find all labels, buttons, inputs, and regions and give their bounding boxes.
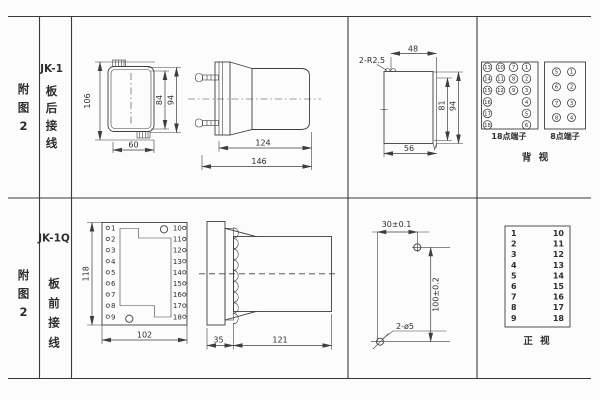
table-number: 13: [553, 261, 564, 270]
drawing-sheet: 附 图 2 JK-1 板 后 接 线 106 60 84 94: [0, 0, 600, 400]
terminal-number: 15: [484, 88, 491, 94]
terminal-number: 1: [525, 65, 528, 71]
row1-wiring-char-3: 接: [46, 119, 58, 133]
dim-124-label: 124: [255, 139, 270, 148]
row2-side-view: 35 121: [199, 222, 336, 350]
row1-front-view: 106 60 84 94: [83, 60, 181, 153]
terminal-circle: 8: [509, 75, 518, 84]
table-number: 16: [553, 293, 565, 302]
terminal-dot: [106, 293, 109, 296]
terminal-dot: [183, 282, 186, 285]
screw-thread-top: [207, 75, 215, 80]
row1-side-view: 124 146: [188, 62, 321, 170]
terminal-number: 18: [484, 123, 491, 129]
terminal-dot: [106, 260, 109, 263]
terminal-circle: 18: [483, 121, 492, 130]
row2-drill-plan: 30±0.1 100±0.2 2-ø5: [371, 220, 450, 349]
row2-figure-char-3: 2: [19, 305, 27, 319]
row1-figure-char-2: 图: [18, 101, 30, 115]
extension-lines-48: [391, 57, 437, 148]
terminal-box-18pt: [482, 62, 539, 129]
row1-rear-view-terminals: 13 14 15 16 17 18 10 11 12 7 8 9 1 2 3 4…: [482, 62, 586, 164]
terminal-circle: 14: [483, 75, 492, 84]
row2-front-table: 110 211 312 413 514 615 716 817 918 正 视: [505, 226, 570, 347]
terminal-block-top-hatch: [116, 60, 125, 67]
terminal-number: 5: [525, 111, 528, 117]
dim-121-label: 121: [272, 336, 287, 345]
dim-94-label: 94: [167, 95, 176, 105]
holes-leader-line: [383, 331, 447, 339]
table-number: 18: [553, 314, 565, 323]
table-number: 8: [511, 303, 517, 312]
terminal-label: 17: [173, 302, 182, 310]
row1-wiring-char-1: 板: [46, 84, 58, 98]
dim-84-label: 84: [155, 95, 164, 105]
terminal-circle: 7: [509, 63, 518, 72]
terminal-number: 16: [484, 100, 491, 106]
terminal-circle: 6: [522, 121, 531, 130]
dim-56-label: 56: [404, 144, 414, 153]
terminal-block-bottom-hatch: [140, 132, 149, 139]
terminal-dot: [183, 260, 186, 263]
mounting-plate-inner-lines: [219, 62, 223, 135]
terminal-dot: [106, 282, 109, 285]
terminal-number: 17: [484, 111, 491, 117]
terminal-number: 2: [525, 77, 528, 83]
terminal-circle: 6: [553, 83, 561, 91]
flange-slants: [230, 62, 252, 135]
bottom-tab: [433, 144, 437, 150]
terminal-label: 15: [173, 280, 182, 288]
terminal-label: 6: [111, 280, 116, 288]
row2-wiring-char-2: 前: [48, 296, 60, 310]
terminal-number: 1: [570, 70, 573, 76]
terminal-number: 3: [525, 88, 528, 94]
terminal-dot: [106, 304, 109, 307]
table-number: 5: [511, 271, 517, 280]
terminal-label: 18: [173, 313, 182, 321]
screw-shaft-top: [203, 75, 219, 80]
terminal-number: 10: [497, 65, 504, 71]
terminal-dot: [106, 271, 109, 274]
terminal-dot: [183, 226, 186, 229]
row2-wiring-char-1: 板: [48, 277, 60, 291]
terminal-circle: 15: [483, 86, 492, 95]
cutout-outline: [384, 72, 433, 144]
terminal-label: 11: [173, 236, 182, 244]
terminal-circle: 1: [522, 63, 531, 72]
terminal-dot: [106, 248, 109, 251]
dim-118-label: 118: [82, 266, 91, 281]
terminal-label: 10: [173, 225, 182, 233]
terminal-circle: 16: [483, 98, 492, 107]
dim-60-label: 60: [128, 141, 138, 150]
terminal-number: 7: [555, 101, 558, 107]
terminal-label: 9: [111, 313, 115, 321]
r2.5-leader-line: [377, 65, 387, 71]
terminal-label: 7: [111, 291, 115, 299]
technical-drawing-svg: 附 图 2 JK-1 板 后 接 线 106 60 84 94: [0, 0, 600, 400]
table-number: 17: [553, 303, 564, 312]
terminal-dot: [183, 271, 186, 274]
terminal-number: 8: [555, 115, 559, 121]
screw-thread-bottom: [207, 121, 215, 126]
dim-146-label: 146: [251, 157, 266, 166]
terminal-label: 1: [111, 225, 115, 233]
terminal-dot: [183, 315, 186, 318]
terminal-label: 13: [173, 258, 182, 266]
table-number: 3: [511, 250, 517, 259]
row2-figure-char-2: 图: [18, 287, 30, 301]
terminal-number: 11: [497, 77, 504, 83]
dim-30-label: 30±0.1: [382, 220, 412, 229]
terminal-label: 4: [111, 258, 116, 266]
terminal-dot: [183, 293, 186, 296]
row1-wiring-char-2: 后: [46, 101, 58, 115]
screw-head-bottom: [196, 119, 203, 127]
terminal-dot: [183, 304, 186, 307]
terminal-circle: 8: [553, 114, 561, 122]
terminal-8pt-caption: 8点端子: [550, 131, 580, 141]
front-view-caption: 正 视: [523, 335, 551, 347]
terminal-number: 7: [512, 65, 515, 71]
terminal-number: 5: [555, 70, 558, 76]
table-number: 11: [553, 240, 565, 249]
row1-labels: 附 图 2 JK-1 板 后 接 线: [18, 63, 63, 150]
radius-label: 2-R2.5: [359, 56, 385, 65]
terminal-dot: [106, 237, 109, 240]
terminal-label: 16: [173, 291, 182, 299]
terminal-circle: 2: [568, 83, 576, 91]
table-number: 9: [511, 314, 517, 323]
table-number: 7: [511, 293, 517, 302]
terminal-number: 3: [570, 101, 573, 107]
terminal-number: 9: [512, 88, 515, 94]
dim-48-label: 48: [408, 45, 418, 54]
dim-94-label: 94: [449, 101, 458, 111]
terminal-circle: 17: [483, 109, 492, 118]
terminal-circle: 2: [522, 75, 531, 84]
mounting-hole-bottom: [126, 315, 133, 322]
dim-81-label: 81: [438, 100, 447, 110]
terminal-number: 4: [570, 115, 574, 121]
terminal-18pt-caption: 18点端子: [491, 131, 526, 141]
table-number: 4: [511, 261, 517, 270]
terminal-number: 12: [497, 88, 504, 94]
row2-figure-char-1: 附: [18, 268, 30, 282]
terminal-number: 2: [570, 85, 573, 91]
rear-view-caption: 背 视: [522, 152, 550, 164]
terminal-circle: 4: [568, 114, 576, 122]
row1-model-label: JK-1: [39, 63, 63, 75]
terminal-label: 8: [111, 302, 115, 310]
terminal-number: 6: [555, 85, 559, 91]
terminal-circle: 10: [496, 63, 505, 72]
terminal-label: 5: [111, 269, 115, 277]
row2-wiring-char-3: 接: [48, 316, 60, 330]
dim-102-label: 102: [137, 331, 152, 340]
row1-figure-char-3: 2: [19, 119, 27, 133]
dim-106-label: 106: [83, 93, 92, 108]
table-number: 1: [511, 229, 517, 238]
terminal-number: 13: [484, 65, 491, 71]
screw-head-top: [196, 74, 203, 82]
terminal-circle: 4: [522, 98, 531, 107]
terminal-block-top: [113, 60, 126, 67]
table-number: 10: [553, 229, 565, 238]
table-number: 2: [511, 240, 517, 249]
inner-stepped-outline: [120, 229, 171, 318]
table-number: 6: [511, 282, 517, 291]
table-number: 14: [553, 271, 565, 280]
row1-figure-char-1: 附: [18, 82, 30, 96]
extension-lines: [207, 314, 332, 350]
terminal-bumps: [234, 228, 239, 324]
terminal-circle: 3: [522, 86, 531, 95]
table-number: 15: [553, 282, 565, 291]
terminal-circle: 1: [568, 68, 576, 76]
terminal-label: 3: [111, 247, 115, 255]
terminal-number: 4: [525, 100, 529, 106]
terminal-dot: [183, 237, 186, 240]
extension-lines-right: [148, 68, 181, 133]
terminal-number: 8: [512, 77, 516, 83]
row2-model-label: JK-1Q: [37, 233, 70, 245]
terminal-dot: [106, 226, 109, 229]
terminal-circle: 9: [509, 86, 518, 95]
row2-wiring-char-4: 线: [48, 336, 60, 350]
row1-wiring-char-4: 线: [46, 136, 58, 150]
terminal-number: 14: [484, 77, 491, 83]
screw-shaft-bottom: [203, 121, 219, 126]
terminal-label: 14: [173, 269, 182, 277]
terminal-dot: [183, 248, 186, 251]
terminal-label: 2: [111, 236, 115, 244]
terminal-circle: 5: [553, 68, 561, 76]
terminal-box-8pt: [545, 62, 586, 129]
row1-cutout-view: 2-R2.5 48 81 94 56: [359, 45, 463, 158]
dim-100-label: 100±0.2: [432, 277, 441, 312]
front-plate: [207, 222, 225, 326]
row2-labels: 附 图 2 JK-1Q 板 前 接 线: [18, 233, 70, 350]
holes-label: 2-ø5: [396, 322, 414, 331]
terminal-circle: 11: [496, 75, 505, 84]
terminal-circle: 3: [568, 99, 576, 107]
dim-35-label: 35: [213, 336, 223, 345]
terminal-circle: 13: [483, 63, 492, 72]
mounting-hole-top: [160, 226, 167, 233]
row2-front-view: 1 2 3 4 5 6 7 8 9 10 11 12 13 14 15 16 1…: [82, 223, 188, 345]
terminal-label: 12: [173, 247, 182, 255]
terminal-circle: 7: [553, 99, 561, 107]
table-number: 12: [553, 250, 564, 259]
terminal-circle: 12: [496, 86, 505, 95]
terminal-circle: 5: [522, 109, 531, 118]
terminal-dot: [106, 315, 109, 318]
terminal-number: 6: [525, 123, 529, 129]
